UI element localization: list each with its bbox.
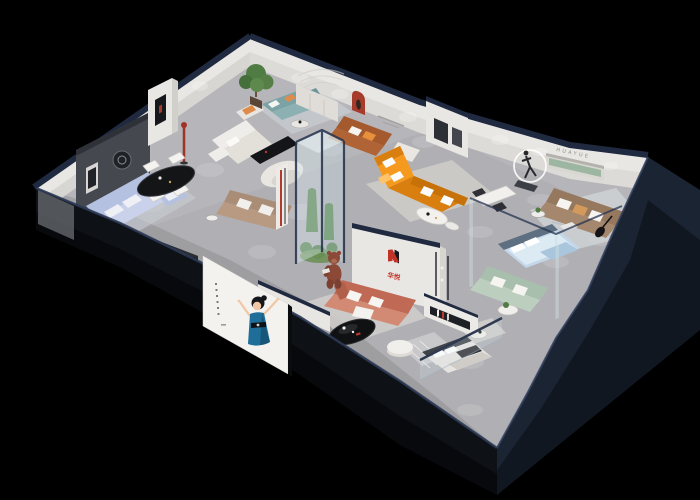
showroom-isometric-render: HUAYUE [0,0,700,500]
render-canvas: HUAYUE [0,0,700,500]
white-pouf [387,340,413,357]
woman-face [253,302,261,310]
round-art-piece [113,151,131,169]
